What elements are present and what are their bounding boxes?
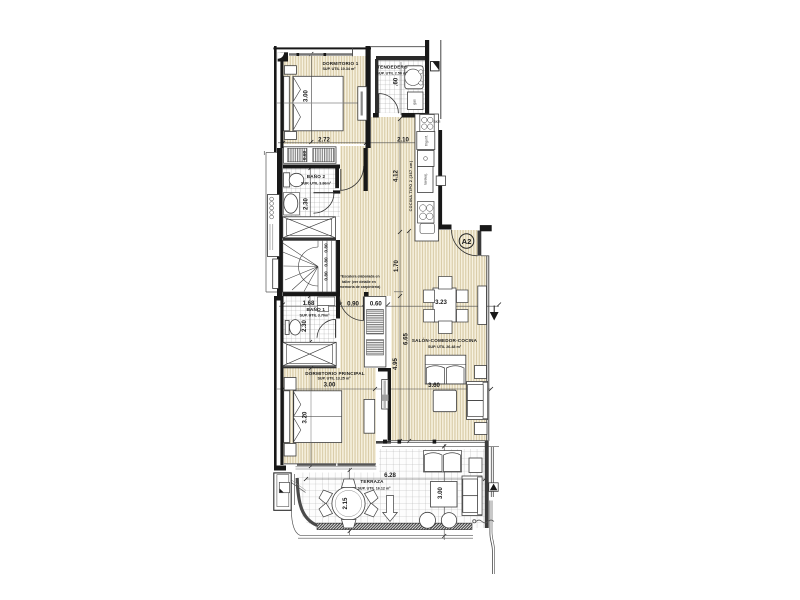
svg-text:6.65: 6.65 xyxy=(403,332,410,344)
svg-text:SUP. UTIL 13.25 m²: SUP. UTIL 13.25 m² xyxy=(317,377,351,381)
svg-text:1.70: 1.70 xyxy=(393,259,400,271)
svg-text:SUP. UTIL 10.34 m²: SUP. UTIL 10.34 m² xyxy=(322,67,356,71)
svg-text:BAÑO 1: BAÑO 1 xyxy=(307,306,326,312)
svg-text:SALÓN-COMEDOR-COCINA: SALÓN-COMEDOR-COCINA xyxy=(412,336,478,343)
svg-text:SUP. UTIL 26.48 m²: SUP. UTIL 26.48 m² xyxy=(428,345,462,349)
svg-text:frigorif.: frigorif. xyxy=(425,135,429,145)
svg-text:2.72: 2.72 xyxy=(318,137,330,144)
svg-text:3.00: 3.00 xyxy=(324,382,336,389)
svg-text:.60: .60 xyxy=(393,77,400,86)
svg-text:DORMITORIO 1: DORMITORIO 1 xyxy=(322,61,358,66)
svg-text:3.23: 3.23 xyxy=(435,299,447,306)
svg-text:4.95: 4.95 xyxy=(392,357,399,369)
svg-text:2.30: 2.30 xyxy=(303,197,310,209)
svg-text:SUP. UTIL 2.50 m²: SUP. UTIL 2.50 m² xyxy=(376,71,408,75)
svg-text:A2: A2 xyxy=(462,237,472,246)
svg-text:2.30: 2.30 xyxy=(301,319,308,331)
svg-text:SUP. UTIL 3.86m²: SUP. UTIL 3.86m² xyxy=(301,182,332,186)
svg-text:4.12: 4.12 xyxy=(393,169,400,181)
svg-text:*Escalera elaborada en: *Escalera elaborada en xyxy=(340,275,379,279)
svg-text:0.90: 0.90 xyxy=(347,300,359,307)
svg-text:0.80: 0.80 xyxy=(324,271,330,281)
svg-text:memoria de carpintería): memoria de carpintería) xyxy=(340,285,382,289)
svg-text:BKR: BKR xyxy=(434,120,442,124)
svg-text:TENDEDERO: TENDEDERO xyxy=(377,65,408,70)
svg-text:0.80: 0.80 xyxy=(324,243,330,253)
svg-text:0.60: 0.60 xyxy=(302,151,308,161)
svg-text:3.60: 3.60 xyxy=(428,382,440,389)
svg-text:3.20: 3.20 xyxy=(301,411,308,423)
svg-text:0.80: 0.80 xyxy=(324,257,330,267)
svg-text:DORMITORIO PRINCIPAL: DORMITORIO PRINCIPAL xyxy=(305,371,364,376)
svg-text:2.15: 2.15 xyxy=(342,497,349,509)
svg-text:3.00: 3.00 xyxy=(437,486,444,498)
svg-text:1.68: 1.68 xyxy=(303,300,315,307)
svg-text:2.10: 2.10 xyxy=(397,137,409,144)
svg-text:3.00: 3.00 xyxy=(303,89,310,101)
svg-text:COCINA TIPO 2 (367 cm): COCINA TIPO 2 (367 cm) xyxy=(409,160,413,211)
svg-text:lavavaj.: lavavaj. xyxy=(424,173,428,185)
svg-text:BAÑO 2: BAÑO 2 xyxy=(307,173,326,179)
svg-text:SUP. UTIL 16.12 m²: SUP. UTIL 16.12 m² xyxy=(357,487,391,491)
svg-text:gas: gas xyxy=(412,99,416,105)
svg-text:SUP. UTIL 3.70m²: SUP. UTIL 3.70m² xyxy=(300,314,331,318)
svg-text:6.28: 6.28 xyxy=(384,472,396,479)
svg-text:0.60: 0.60 xyxy=(370,300,382,307)
svg-text:TERRAZA: TERRAZA xyxy=(360,479,384,484)
svg-text:taller (ver detalle en: taller (ver detalle en xyxy=(342,280,376,284)
